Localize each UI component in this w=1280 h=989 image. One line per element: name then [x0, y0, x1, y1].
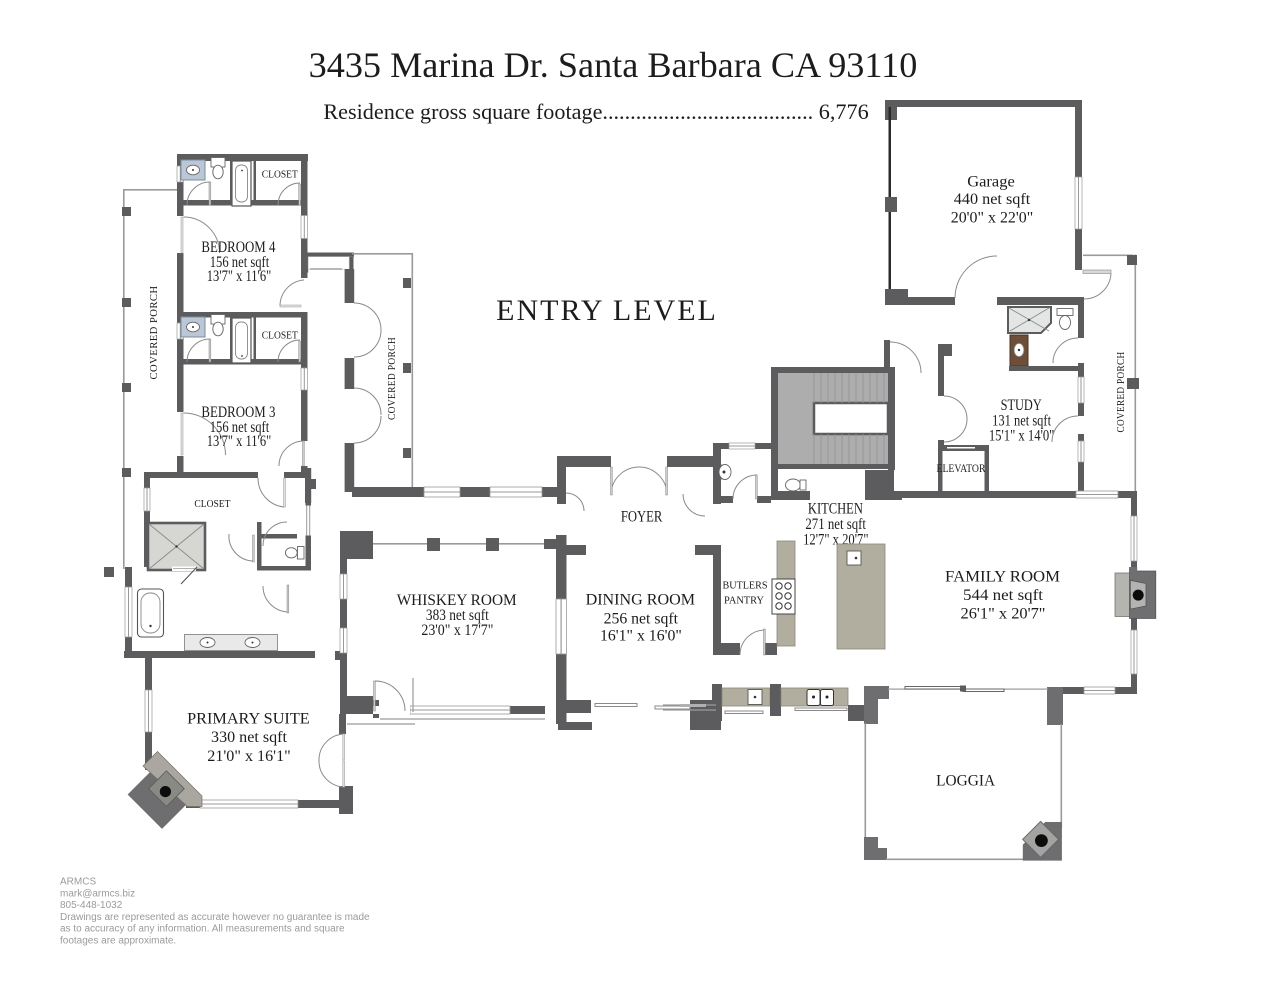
svg-text:CLOSET: CLOSET: [194, 499, 231, 510]
svg-text:COVERED PORCH: COVERED PORCH: [387, 337, 398, 420]
svg-text:footages are approximate.: footages are approximate.: [60, 936, 176, 947]
svg-text:CLOSET: CLOSET: [262, 330, 299, 341]
svg-text:CLOSET: CLOSET: [262, 169, 299, 180]
svg-text:Drawings are represented as ac: Drawings are represented as accurate how…: [60, 912, 370, 923]
svg-text:as to accuracy of any informat: as to accuracy of any information. All m…: [60, 924, 345, 935]
svg-text:STUDY: STUDY: [1001, 397, 1042, 414]
svg-text:15'1" x 14'0": 15'1" x 14'0": [989, 428, 1055, 445]
svg-text:ARMCS: ARMCS: [60, 877, 96, 888]
svg-text:PRIMARY SUITE: PRIMARY SUITE: [187, 711, 310, 728]
svg-text:20'0" x 22'0": 20'0" x 22'0": [951, 209, 1034, 226]
svg-text:KITCHEN: KITCHEN: [808, 501, 863, 518]
svg-text:440 net sqft: 440 net sqft: [954, 191, 1031, 208]
svg-text:21'0" x 16'1": 21'0" x 16'1": [207, 748, 291, 765]
svg-text:3435 Marina Dr. Santa Barbara: 3435 Marina Dr. Santa Barbara CA 93110: [309, 45, 918, 85]
svg-text:544 net sqft: 544 net sqft: [963, 587, 1044, 604]
svg-text:LOGGIA: LOGGIA: [936, 773, 995, 790]
svg-text:FOYER: FOYER: [621, 509, 663, 526]
svg-text:FAMILY ROOM: FAMILY ROOM: [945, 569, 1060, 586]
svg-text:ENTRY LEVEL: ENTRY LEVEL: [496, 294, 718, 327]
svg-text:16'1" x 16'0": 16'1" x 16'0": [600, 627, 682, 644]
svg-text:23'0" x 17'7": 23'0" x 17'7": [421, 622, 493, 639]
svg-text:COVERED PORCH: COVERED PORCH: [149, 285, 160, 379]
svg-text:26'1" x 20'7": 26'1" x 20'7": [961, 606, 1046, 623]
svg-text:805-448-1032: 805-448-1032: [60, 900, 123, 911]
svg-text:330 net sqft: 330 net sqft: [211, 729, 288, 746]
svg-text:13'7" x 11'6": 13'7" x 11'6": [207, 268, 271, 285]
svg-text:256 net sqft: 256 net sqft: [604, 610, 679, 627]
svg-text:COVERED PORCH: COVERED PORCH: [1116, 351, 1127, 432]
svg-text:BUTLERS: BUTLERS: [723, 581, 768, 592]
svg-text:DINING ROOM: DINING ROOM: [586, 592, 695, 609]
svg-text:13'7" x 11'6": 13'7" x 11'6": [207, 433, 271, 450]
svg-text:mark@armcs.biz: mark@armcs.biz: [60, 889, 135, 900]
svg-text:Residence gross square footage: Residence gross square footage..........…: [323, 99, 868, 124]
svg-text:PANTRY: PANTRY: [724, 596, 764, 607]
svg-text:ELEVATOR: ELEVATOR: [937, 463, 986, 475]
svg-text:Garage: Garage: [967, 174, 1015, 191]
